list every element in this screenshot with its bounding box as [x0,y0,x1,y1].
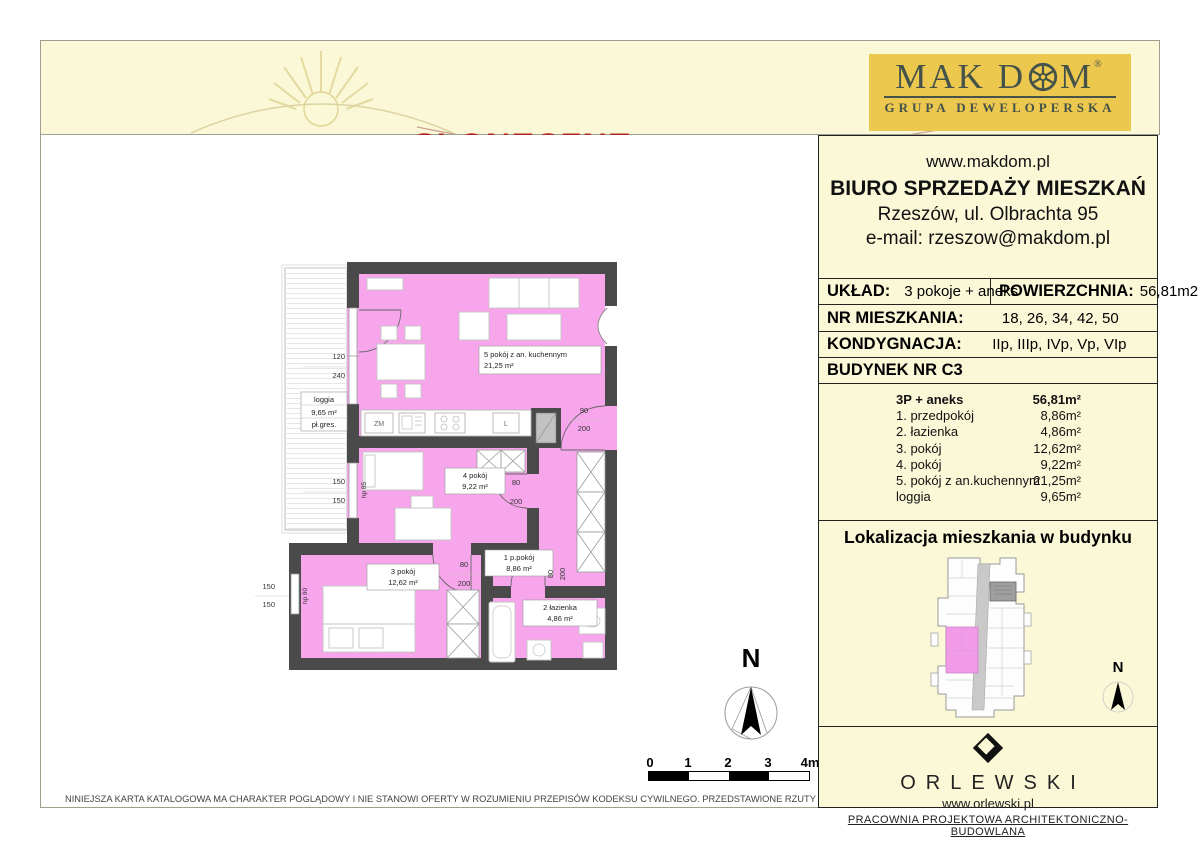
layout-label: UKŁAD: [819,282,890,301]
loggia-area: 9,65 m² [311,408,337,417]
info-column: www.makdom.pl BIURO SPRZEDAŻY MIESZKAŃ R… [818,135,1158,808]
area-label: POWIERZCHNIA: [991,282,1134,301]
layout-cell: UKŁAD: 3 pokoje + aneks [819,279,991,304]
dim-door3-h: 200 [458,579,471,588]
localization-section: Lokalizacja mieszkania w budynku [819,521,1157,727]
dim-door4-w: 80 [512,478,520,487]
architect-website: www.orlewski.pl [819,796,1157,811]
localization-title: Lokalizacja mieszkania w budynku [819,527,1157,548]
dim-door3-w: 80 [460,560,468,569]
scale-segments [648,771,810,781]
orlewski-logo-icon [971,731,1005,765]
room3-label: 3 pokój [391,567,416,576]
room4-label: 4 pokój [463,471,488,480]
room-area-table: 3P + aneks 56,81m² 1. przedpokój 8,86m² … [819,383,1157,521]
sun-disc [304,92,338,126]
brand-registered: ® [1094,47,1105,83]
room5-area: 21,25 m² [484,361,514,370]
room2-area: 4,86 m² [547,614,573,623]
room4-area: 9,22 m² [462,482,488,491]
scale-2: 2 [724,755,731,770]
scale-4m: 4m [801,755,820,770]
apartment-no-label: NR MIESZKANIA: [819,309,964,328]
floor-plan-panel: ZM L [40,135,820,808]
architect-tagline: PRACOWNIA PROJEKTOWA ARCHITEKTONICZNO-BU… [819,814,1157,838]
loggia-floor: pł.gres. [312,420,337,429]
room-table-header: 3P + aneks 56,81m² [819,392,1157,408]
catalog-card: Osiedle SŁONECZNE MAK D M ® GRUPA DEWE [0,0,1200,848]
floor-label: KONDYGNACJA: [819,335,962,354]
dim-win4-b: 150 [332,496,345,505]
washer-label: ZM [374,421,384,428]
sales-office-email: e-mail: rzeszow@makdom.pl [819,228,1157,250]
floor-plan: ZM L [251,256,626,676]
compass-rose: N [713,643,791,755]
brand-logo: MAK D M ® GRUPA DEWELOPERSKA [869,54,1131,131]
room2-label: 2 łazienka [543,603,578,612]
compass-n-label: N [742,643,761,673]
room-row: loggia 9,65m² [819,489,1157,505]
header-band: Osiedle SŁONECZNE MAK D M ® GRUPA DEWE [40,40,1160,135]
dim-hp-room4: hp 85 [361,481,368,498]
room5-label: 5 pokój z an. kuchennym [484,350,567,359]
mini-compass: N [1099,657,1137,717]
dim-door2-h: 200 [558,568,567,581]
dim-balcony-w: 120 [332,352,345,361]
contact-section: www.makdom.pl BIURO SPRZEDAŻY MIESZKAŃ R… [819,136,1157,279]
spec-row-floor: KONDYGNACJA: IIp, IIIp, IVp, Vp, VIp [819,332,1157,358]
dim-door2-w: 80 [546,570,555,578]
dim-win3-b: 150 [262,600,275,609]
scale-bar: 0 1 2 3 4m [646,755,818,791]
room-row: 5. pokój z an.kuchennym 21,25m² [819,473,1157,489]
mini-compass-needle [1111,682,1125,710]
room3-area: 12,62 m² [388,578,418,587]
brand-tagline: GRUPA DEWELOPERSKA [869,100,1131,116]
spec-row-layout-area: UKŁAD: 3 pokoje + aneks POWIERZCHNIA: 56… [819,279,1157,305]
scale-numbers: 0 1 2 3 4m [646,755,818,771]
room-row: 1. przedpokój 8,86m² [819,408,1157,424]
sales-office-address: Rzeszów, ul. Olbrachta 95 [819,204,1157,226]
room-table-header-area: 56,81m² [1033,392,1081,407]
scale-1: 1 [684,755,691,770]
room-row: 4. pokój 9,22m² [819,457,1157,473]
mini-compass-n-label: N [1113,659,1124,676]
makdom-website: www.makdom.pl [819,152,1157,172]
dim-entry-h: 200 [578,424,591,433]
brand-rule [884,96,1116,98]
building-label: BUDYNEK NR C3 [819,361,963,380]
dim-entry-w: 90 [580,406,588,415]
fridge-label: L [504,421,508,428]
dim-win4-a: 150 [332,477,345,486]
floor-value: IIp, IIIp, IVp, Vp, VIp [962,336,1157,353]
room-row: 3. pokój 12,62m² [819,441,1157,457]
room1-area: 8,86 m² [506,564,532,573]
poppy-o-icon [1027,61,1059,93]
scale-0: 0 [646,755,653,770]
brand-name: MAK D M ® [869,59,1131,95]
disclaimer-text: NINIEJSZA KARTA KATALOGOWA MA CHARAKTER … [65,794,810,804]
brand-name-pre: MAK D [895,59,1026,95]
dim-balcony-h: 240 [332,371,345,380]
scale-3: 3 [764,755,771,770]
building-mini-plan [922,553,1057,721]
area-value: 56,81m2 [1140,283,1198,300]
brand-name-post: M [1060,59,1094,95]
building-stairwell [990,582,1016,601]
kitchen: ZM L [361,410,531,436]
spec-row-apartment-no: NR MIESZKANIA: 18, 26, 34, 42, 50 [819,306,1157,332]
sales-office-title: BIURO SPRZEDAŻY MIESZKAŃ [819,177,1157,201]
architect-name: ORLEWSKI [819,772,1157,795]
room-table-header-name: 3P + aneks [896,392,963,407]
architect-section: ORLEWSKI www.orlewski.pl PRACOWNIA PROJE… [819,727,1157,809]
loggia-label: loggia [314,395,335,404]
spec-row-building: BUDYNEK NR C3 [819,358,1157,384]
area-cell: POWIERZCHNIA: 56,81m2 [991,279,1198,304]
dim-door4-h: 200 [510,497,523,506]
apartment-no-value: 18, 26, 34, 42, 50 [964,310,1157,327]
room1-label: 1 p.pokój [504,553,535,562]
dim-hp-room3: hp 90 [302,587,309,604]
dim-win3-a: 150 [262,582,275,591]
highlighted-unit [946,627,978,673]
room-row: 2. łazienka 4,86m² [819,424,1157,440]
